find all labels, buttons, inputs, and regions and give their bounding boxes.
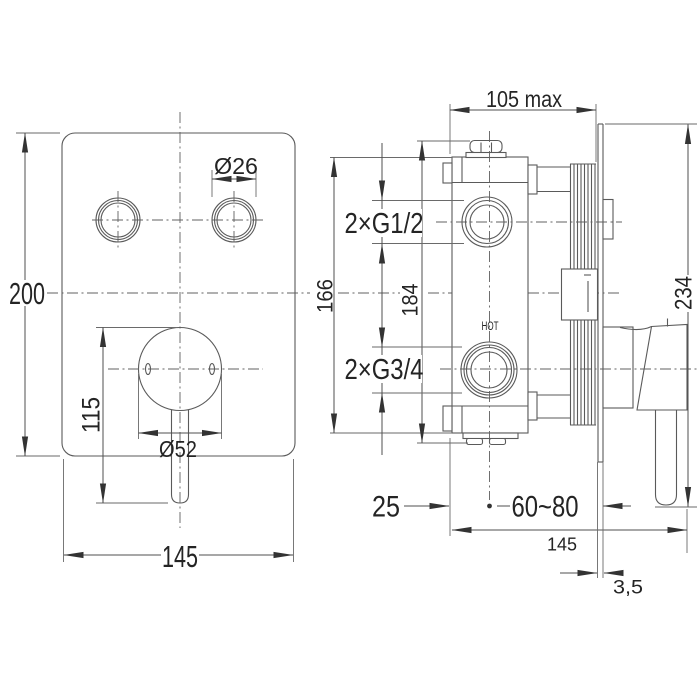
dim-label-top-connections: 2×G1/2 xyxy=(345,208,424,240)
axis-point xyxy=(487,504,492,509)
dim-label-handle-diameter: Ø52 xyxy=(159,436,197,462)
lever-handle-side xyxy=(603,319,687,506)
dim-body-height xyxy=(330,158,452,434)
dim-label-bottom-connections: 2×G3/4 xyxy=(345,354,424,386)
dim-overall-height xyxy=(605,124,697,507)
handle-head-side xyxy=(637,325,687,411)
body-tab-top xyxy=(443,163,452,183)
dim-label-front-width: 145 xyxy=(162,539,198,574)
dim-label-knob-diameter: Ø26 xyxy=(214,153,258,179)
outlet-boss-top xyxy=(528,165,537,194)
dim-label-install-depth: 60~80 xyxy=(512,491,579,524)
dim-label-front-height: 200 xyxy=(9,276,45,311)
dim-label-handle-offset: 115 xyxy=(78,397,106,433)
dim-label-body-height: 166 xyxy=(313,279,338,313)
diverter-knob-side xyxy=(603,200,613,240)
hot-marking: HOT xyxy=(482,321,499,333)
sleeve-nut xyxy=(562,269,598,320)
dim-label-overall-depth: 145 xyxy=(547,534,577,554)
dim-center-offset xyxy=(404,438,450,536)
dim-label-max-depth: 105 max xyxy=(486,86,562,112)
dim-label-overall-height: 234 xyxy=(670,276,697,310)
lever-grip-side xyxy=(656,410,677,505)
dim-label-mounting-height: 184 xyxy=(398,284,423,317)
side-view xyxy=(436,124,697,508)
port-g34-hot xyxy=(461,342,517,398)
outlet-boss-bottom xyxy=(528,392,537,420)
dim-label-plate-thickness: 3,5 xyxy=(613,578,643,599)
dim-label-center-offset: 25 xyxy=(372,491,400,524)
mixer-dimension-drawing: 200 145 115 Ø52 Ø26 105 max 166 184 234 … xyxy=(0,0,700,700)
bottom-cap-screw xyxy=(463,433,518,445)
body-tab-bottom xyxy=(443,406,452,431)
top-cap-screw xyxy=(466,141,506,158)
technical-drawing-page: 200 145 115 Ø52 Ø26 105 max 166 184 234 … xyxy=(0,0,700,700)
front-view xyxy=(62,112,295,528)
handle-hub-side xyxy=(603,327,633,408)
